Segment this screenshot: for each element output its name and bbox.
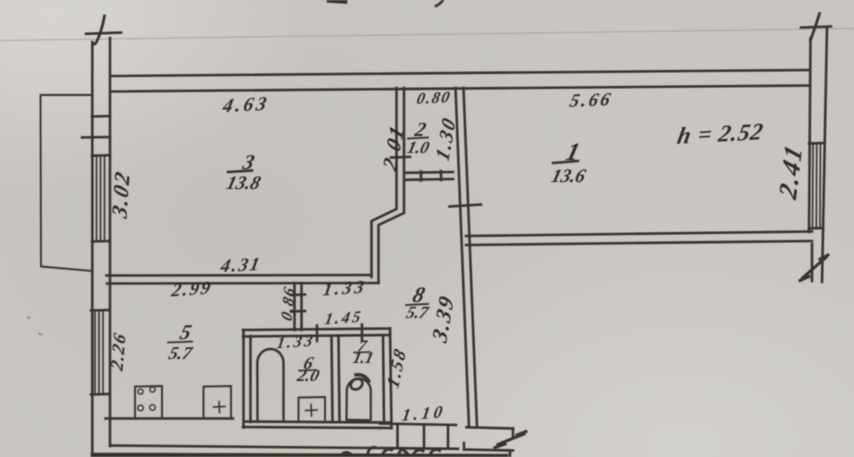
svg-text:1.33: 1.33: [275, 332, 316, 353]
svg-text:3.02: 3.02: [107, 167, 135, 221]
svg-text:4.63: 4.63: [220, 93, 271, 117]
svg-text:2.99: 2.99: [169, 278, 214, 302]
svg-text:h = 2.52: h = 2.52: [675, 119, 766, 149]
svg-text:3.39: 3.39: [427, 291, 459, 347]
svg-text:5.66: 5.66: [568, 89, 615, 111]
svg-text:13.8: 13.8: [224, 173, 263, 194]
svg-text:1.10: 1.10: [401, 402, 448, 425]
svg-text:1.30: 1.30: [432, 113, 460, 164]
svg-text:1.58: 1.58: [383, 344, 410, 391]
svg-text:1.45: 1.45: [323, 308, 364, 329]
svg-text:4.31: 4.31: [218, 254, 263, 277]
svg-text:1.0: 1.0: [405, 138, 431, 157]
svg-text:2.26: 2.26: [107, 330, 130, 374]
svg-text:5: 5: [178, 320, 195, 344]
svg-text:1.33: 1.33: [322, 276, 369, 299]
svg-text:5.7: 5.7: [404, 303, 431, 322]
svg-text:2.0: 2.0: [294, 366, 321, 385]
svg-text:5.7: 5.7: [167, 343, 195, 363]
svg-text:0.86: 0.86: [279, 284, 298, 323]
svg-text:2.41: 2.41: [774, 140, 808, 204]
svg-text:13.6: 13.6: [549, 166, 588, 187]
svg-text:0.80: 0.80: [415, 88, 452, 108]
